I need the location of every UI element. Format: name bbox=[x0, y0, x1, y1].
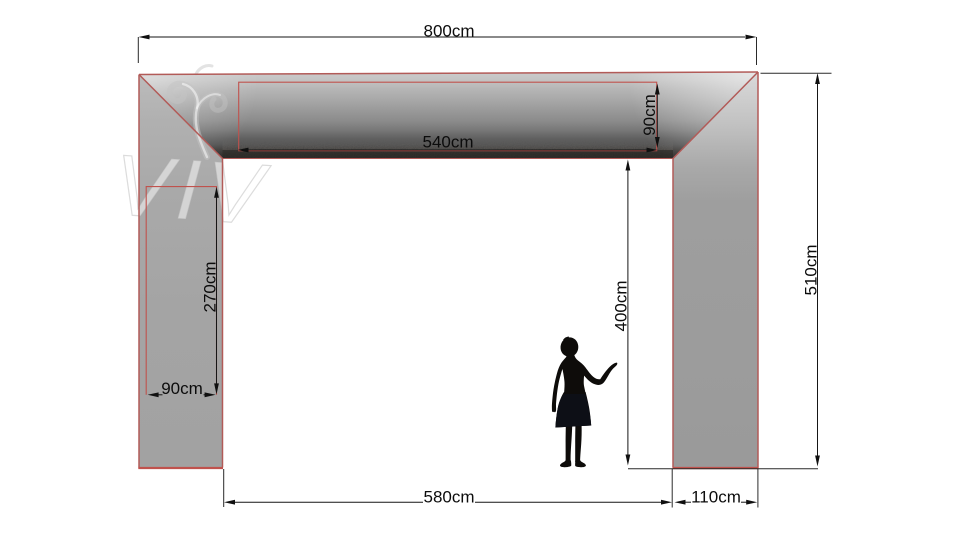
svg-text:110cm: 110cm bbox=[691, 487, 741, 506]
svg-text:90cm: 90cm bbox=[161, 379, 203, 398]
svg-text:800cm: 800cm bbox=[423, 21, 474, 40]
svg-text:90cm: 90cm bbox=[640, 94, 659, 136]
svg-text:400cm: 400cm bbox=[612, 280, 631, 331]
svg-text:510cm: 510cm bbox=[802, 244, 821, 295]
svg-text:VIV: VIV bbox=[111, 137, 274, 244]
svg-text:580cm: 580cm bbox=[423, 487, 474, 506]
svg-text:270cm: 270cm bbox=[201, 261, 220, 312]
svg-text:540cm: 540cm bbox=[422, 133, 473, 152]
